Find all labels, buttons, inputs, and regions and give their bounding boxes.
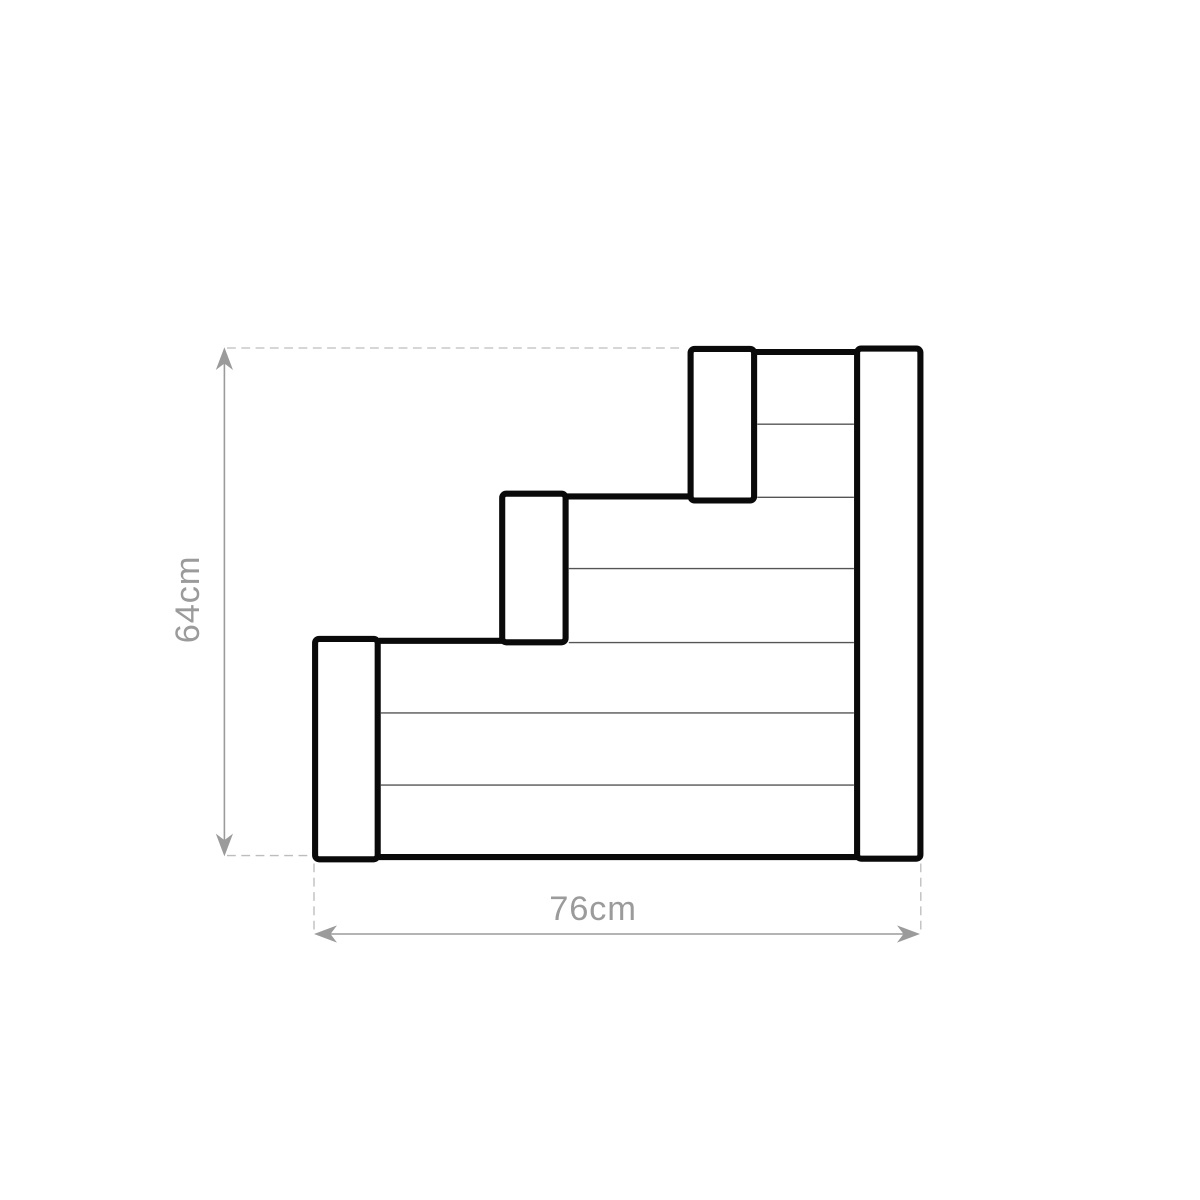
svg-text:64cm: 64cm [169, 556, 207, 644]
svg-text:76cm: 76cm [549, 890, 637, 928]
